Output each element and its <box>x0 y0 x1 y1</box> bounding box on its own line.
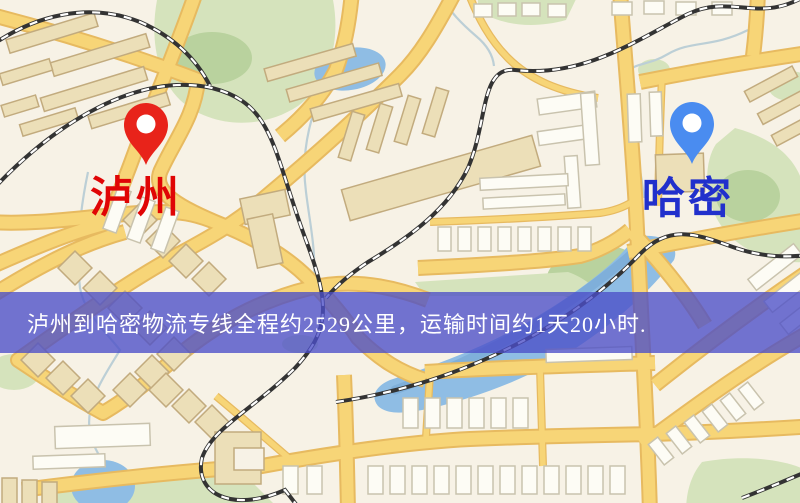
map: 泸州 哈密 泸州到哈密物流专线全程约2529公里，运输时间约1天20小时. <box>0 0 800 503</box>
route-info-banner: 泸州到哈密物流专线全程约2529公里，运输时间约1天20小时. <box>0 292 800 353</box>
map-canvas[interactable] <box>0 0 800 503</box>
origin-city-label: 泸州 <box>90 177 182 220</box>
dest-city-label: 哈密 <box>642 178 734 221</box>
route-info-text: 泸州到哈密物流专线全程约2529公里，运输时间约1天20小时. <box>0 307 647 339</box>
